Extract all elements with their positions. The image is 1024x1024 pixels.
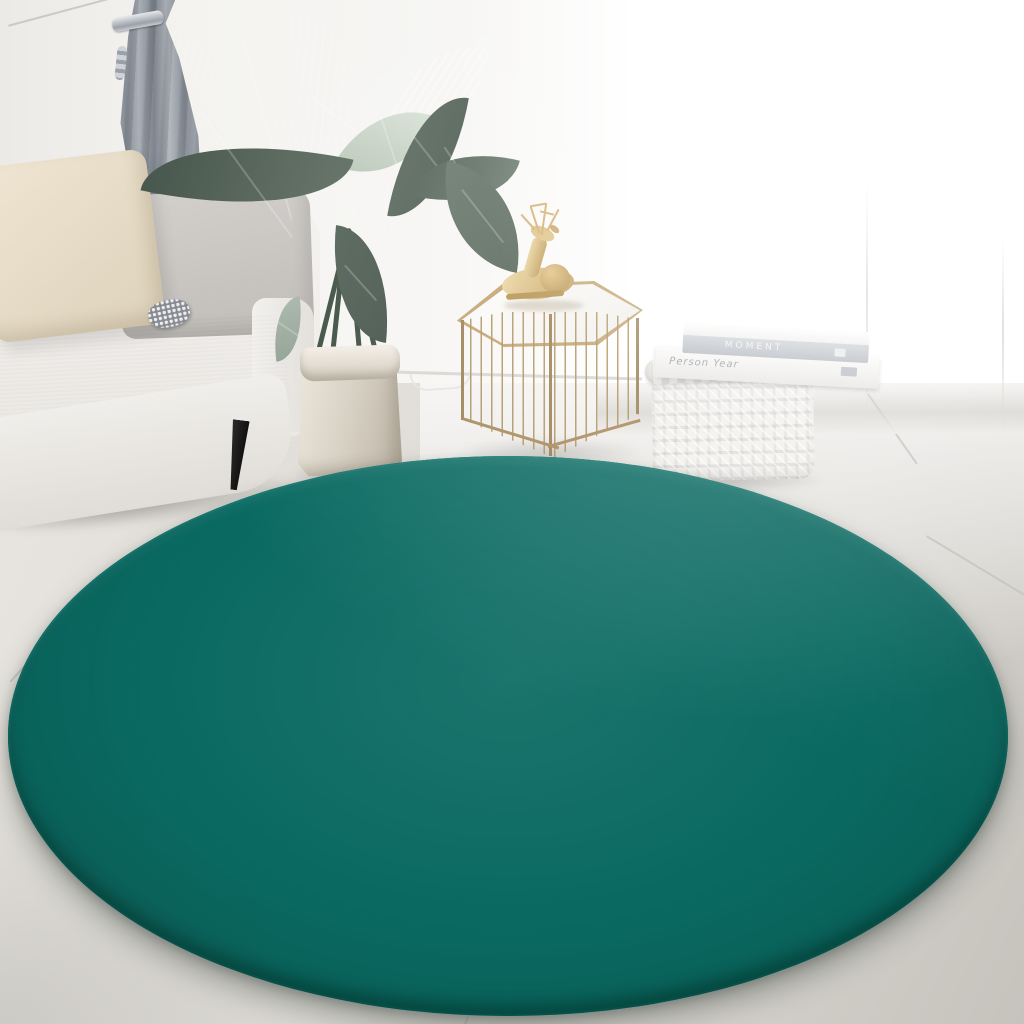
deer-haunch	[540, 264, 570, 293]
book-top-title: MOMENT	[724, 340, 783, 353]
side-table-corner-wire	[549, 314, 552, 456]
sheer-curtain-crease	[866, 182, 868, 427]
throw-pillow: ●◆●◆◆●◆●●◆●◆❚●❚◆	[0, 148, 166, 344]
book-bottom-label	[841, 367, 857, 377]
round-patchwork-rug: ❧❧❧❄✼❅✼❄✼❅✼❄❦❦❧❋❀❄✼❅✼❄✼❅✼❄❅❦❦❦❦❧❧❧❧✣∼∼∼∼…	[8, 456, 1008, 1016]
sheer-curtain-crease	[1002, 238, 1004, 438]
deer-shadow	[504, 300, 584, 311]
side-table-corner-wire	[461, 320, 464, 420]
rug-patchwork-grid: ❧❧❧❄✼❅✼❄✼❅✼❄❦❦❧❋❀❄✼❅✼❄✼❅✼❄❅❦❦❦❦❧❧❧❧✣∼∼∼∼…	[8, 456, 1008, 1016]
living-room-scene: ●◆●◆◆●◆●●◆●◆❚●❚◆ Person Year	[0, 0, 1024, 1024]
pillow-pattern: ●◆●◆◆●◆●●◆●◆❚●❚◆	[0, 160, 152, 329]
side-table-corner-wire	[636, 318, 639, 414]
planter-rolled-rim	[299, 344, 400, 381]
book-top-sticker	[834, 348, 845, 357]
